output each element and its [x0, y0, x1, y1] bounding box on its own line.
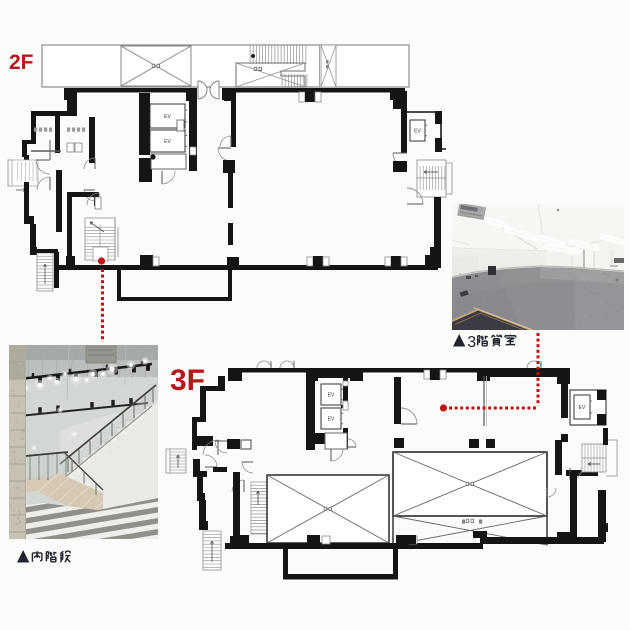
svg-text:3: 3 — [467, 334, 476, 351]
svg-text:EV: EV — [414, 128, 421, 134]
svg-text:EV: EV — [164, 114, 171, 120]
svg-text:EV: EV — [328, 416, 335, 422]
svg-text:3F: 3F — [170, 364, 205, 397]
svg-text:2F: 2F — [9, 51, 34, 74]
svg-text:EV: EV — [579, 405, 586, 411]
svg-text:EV: EV — [328, 392, 335, 398]
svg-text:EV: EV — [164, 139, 171, 145]
